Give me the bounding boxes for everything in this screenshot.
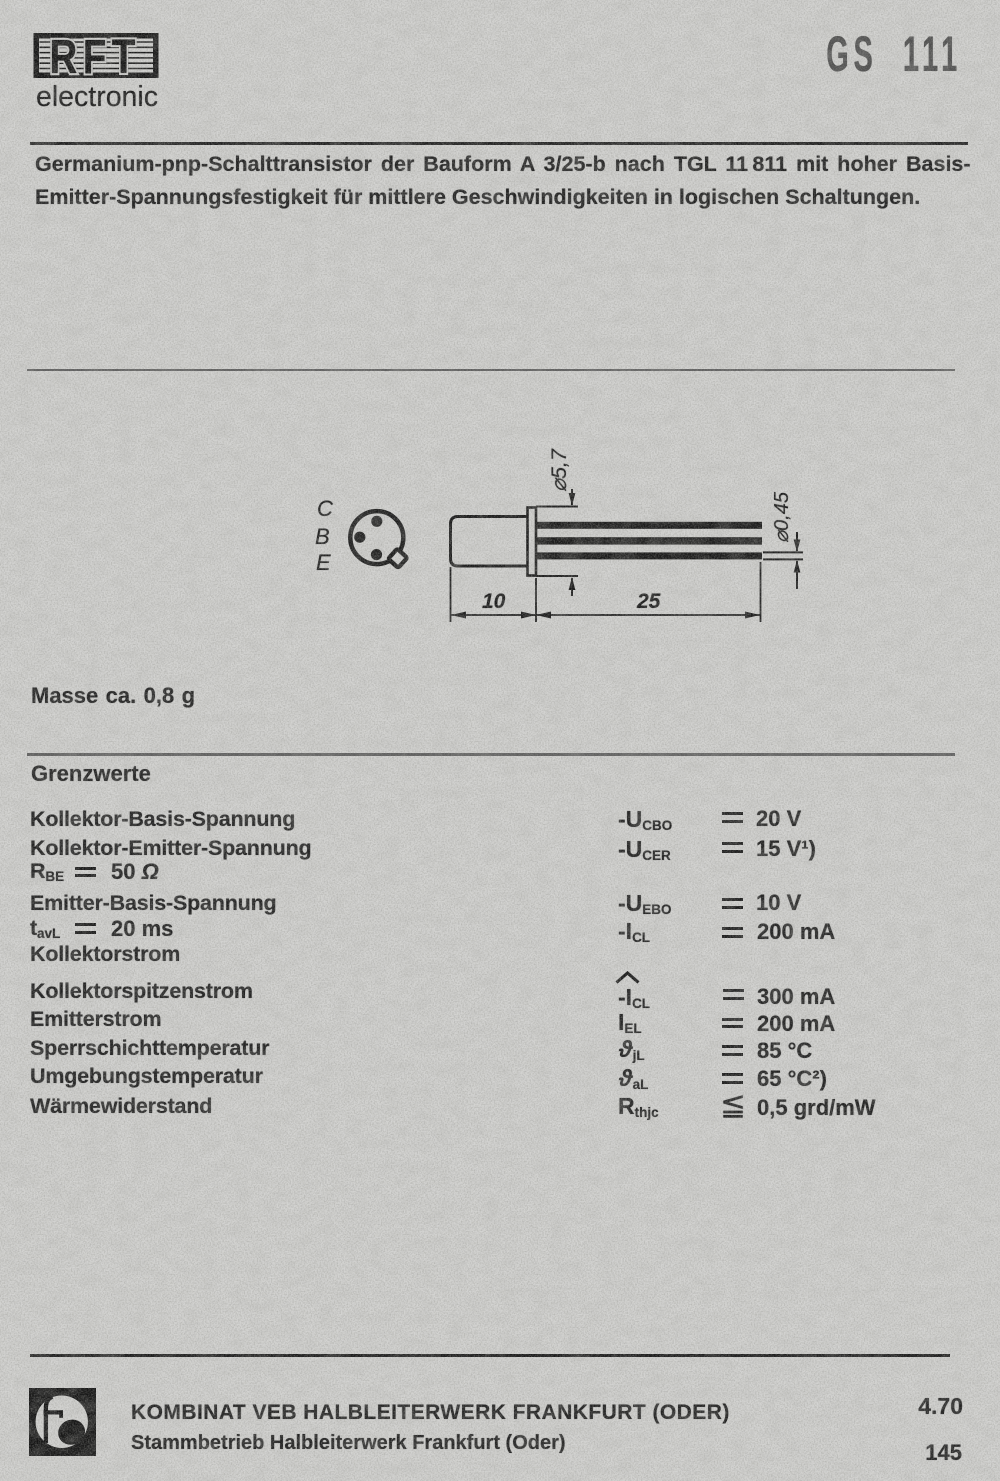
svg-text:RFT: RFT bbox=[50, 31, 141, 84]
svg-text:10: 10 bbox=[482, 590, 506, 613]
svg-text:25: 25 bbox=[636, 590, 661, 613]
svg-text:C: C bbox=[317, 496, 333, 521]
svg-text:⌀0,45: ⌀0,45 bbox=[771, 491, 793, 543]
svg-text:E: E bbox=[316, 550, 331, 575]
svg-text:electronic: electronic bbox=[36, 81, 158, 113]
svg-text:⌀5,7: ⌀5,7 bbox=[547, 448, 571, 492]
svg-text:B: B bbox=[315, 524, 330, 549]
